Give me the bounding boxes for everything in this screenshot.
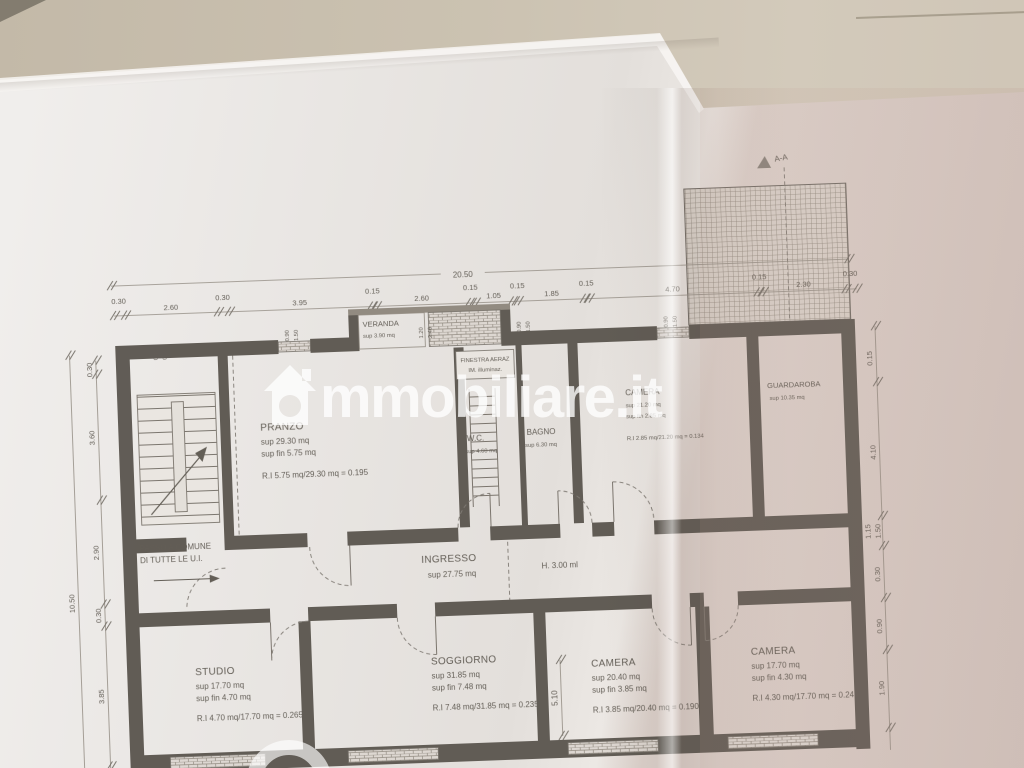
dim-label: 0.90	[875, 619, 885, 634]
passo-line1: PASSO A COMUNE	[139, 542, 211, 554]
room-ratio: R.I 7.48 mq/31.85 mq = 0.235	[433, 700, 540, 713]
room-soggiorno: SOGGIORNO sup 31.85 mq sup fin 7.48 mq R…	[431, 653, 540, 713]
room-camera-right: CAMERA sup 17.70 mq sup fin 4.30 mq R.I …	[751, 643, 860, 703]
room-name: GUARDAROBA	[767, 379, 821, 390]
dim-label: 2.40	[428, 327, 434, 339]
room-name: VERANDA	[362, 319, 399, 329]
room-ratio: R.I 4.70 mq/17.70 mq = 0.265	[197, 710, 304, 723]
dim-label: 2.60	[414, 293, 429, 303]
dim-label: 1.85	[544, 289, 559, 299]
room-area: sup 10.35 mq	[769, 395, 804, 402]
room-ratio: R.I 3.85 mq/20.40 mq = 0.190	[593, 702, 700, 715]
window	[278, 341, 310, 352]
room-guardaroba: GUARDAROBA sup 10.35 mq	[767, 379, 821, 402]
entry-arrow	[210, 574, 220, 582]
dim-label: 1.50	[294, 330, 300, 342]
dim-label: 4.70	[665, 284, 680, 294]
room-area: sup 29.30 mq	[261, 436, 310, 447]
room-area-fin: sup fin 2.85 mq	[626, 413, 666, 420]
dim-label: 0.30	[215, 293, 230, 303]
room-name: BAGNO	[526, 427, 555, 437]
passo-line2: DI TUTTE LE U.I.	[140, 554, 203, 565]
dim-label: 0.15	[865, 351, 875, 366]
terrace-hatch: A-A	[683, 150, 851, 325]
room-ratio: R.I 2.85 mq/21.20 mq = 0.134	[627, 433, 705, 442]
dim-label: 2.30	[796, 279, 811, 289]
dim-label: 0.15	[752, 272, 767, 282]
dim-label: 1.15	[863, 524, 873, 539]
staircase	[137, 392, 220, 525]
room-ratio: R.I 4.30 mq/17.70 mq = 0.243	[752, 690, 859, 703]
room-name: PRANZO	[260, 421, 304, 434]
dim-label: 0.90	[517, 321, 523, 333]
passo-comune-label: PASSO A COMUNE DI TUTTE LE U.I.	[139, 542, 211, 566]
photo-scene: A-A 20.50 0.30 2.60 0.30 3.95 0.15 2.60 …	[0, 0, 1024, 768]
dim-label: 4.10	[868, 445, 878, 460]
dim-label: 2.60	[163, 303, 178, 313]
dim-label: 0.30	[111, 297, 126, 307]
dim-label: 0.90	[663, 316, 669, 328]
room-pranzo: PRANZO sup 29.30 mq sup fin 5.75 mq R.I …	[260, 419, 369, 481]
dim-label: 1.50	[672, 316, 678, 328]
room-area: sup 3.90 mq	[363, 333, 395, 340]
veranda: VERANDA sup 3.90 mq 1.20 2.40	[348, 304, 511, 352]
dim-label: 3.95	[292, 298, 307, 308]
room-area: sup 17.70 mq	[196, 681, 245, 692]
room-area-fin: sup fin 4.30 mq	[752, 672, 807, 683]
dim-label: 0.30	[162, 348, 168, 360]
floorplan-drawing: A-A 20.50 0.30 2.60 0.30 3.95 0.15 2.60 …	[0, 0, 1024, 768]
dim-label: 0.15	[365, 286, 380, 296]
dim-label: 3.60	[87, 430, 97, 445]
room-name: CAMERA	[591, 657, 636, 670]
dim-label: 0.30	[85, 363, 95, 378]
room-camera-top: CAMERA sup 21.20 mq sup fin 2.85 mq R.I …	[625, 386, 705, 443]
dim-label: 0.90	[285, 330, 291, 342]
finestra-line2: IM. illuminaz.	[468, 367, 502, 374]
room-studio: STUDIO sup 17.70 mq sup fin 4.70 mq R.I …	[195, 663, 304, 723]
dim-left-outer: 10.50	[67, 594, 77, 613]
room-area-fin: sup fin 5.75 mq	[261, 448, 316, 459]
room-area: sup 27.75 mq	[428, 569, 477, 580]
dim-label: 3.85	[97, 689, 107, 704]
room-ingresso: INGRESSO sup 27.75 mq H. 3.00 ml	[421, 549, 578, 580]
room-area: sup 31.85 mq	[431, 670, 480, 681]
dim-label: 1.50	[526, 321, 532, 333]
room-name: INGRESSO	[421, 553, 477, 566]
dim-label: 0.30	[94, 608, 104, 623]
dim-label: 2.90	[92, 545, 102, 560]
window	[657, 327, 689, 338]
dim-label: 1.90	[877, 681, 887, 696]
soggiorno-depth-dim: 5.10	[549, 655, 569, 741]
room-area: sup 4.60 mq	[465, 448, 497, 455]
left-dimension-lines: 10.50 0.30 3.60 2.90 0.30 3.85	[58, 350, 117, 768]
room-area: sup 20.40 mq	[592, 672, 641, 683]
dim-label: 0.30	[873, 567, 883, 582]
room-name: W.C.	[467, 434, 485, 444]
dim-label: 1.50	[873, 524, 883, 539]
dim-label: 1.05	[486, 291, 501, 301]
dim-label: 0.15	[510, 281, 525, 291]
room-bagno: BAGNO sup 6.30 mq	[524, 427, 557, 449]
dim-label: 0.30	[843, 269, 858, 279]
dim-label: 5.10	[550, 690, 560, 706]
dim-total-width: 20.50	[453, 270, 474, 280]
dim-label: 0.15	[463, 283, 478, 293]
dim-label: 1.20	[419, 327, 425, 339]
ceiling-height: H. 3.00 ml	[541, 560, 578, 570]
room-wc: W.C. sup 4.60 mq	[465, 433, 498, 455]
room-area: sup 21.20 mq	[626, 402, 661, 409]
room-name: CAMERA	[625, 387, 660, 397]
room-name: SOGGIORNO	[431, 654, 497, 667]
room-area: sup 6.30 mq	[525, 442, 557, 449]
room-area: sup 17.70 mq	[751, 660, 800, 671]
room-area-fin: sup fin 4.70 mq	[196, 692, 251, 703]
room-name: CAMERA	[751, 645, 796, 658]
room-area-fin: sup fin 3.85 mq	[592, 684, 647, 695]
room-name: STUDIO	[195, 666, 235, 678]
section-marker-label: A-A	[774, 152, 789, 163]
dim-label: 0.15	[579, 278, 594, 288]
floorplan-svg: A-A 20.50 0.30 2.60 0.30 3.95 0.15 2.60 …	[0, 0, 1024, 768]
room-area-fin: sup fin 7.48 mq	[432, 682, 487, 693]
room-ratio: R.I 5.75 mq/29.30 mq = 0.195	[262, 468, 369, 481]
section-marker-arrow	[757, 156, 771, 169]
dim-label: 0.15	[153, 349, 159, 361]
room-camera-mid: CAMERA sup 20.40 mq sup fin 3.85 mq R.I …	[591, 655, 700, 715]
finestra-aeraz-note: FINESTRA AERAZ IM. illuminaz.	[456, 349, 515, 379]
